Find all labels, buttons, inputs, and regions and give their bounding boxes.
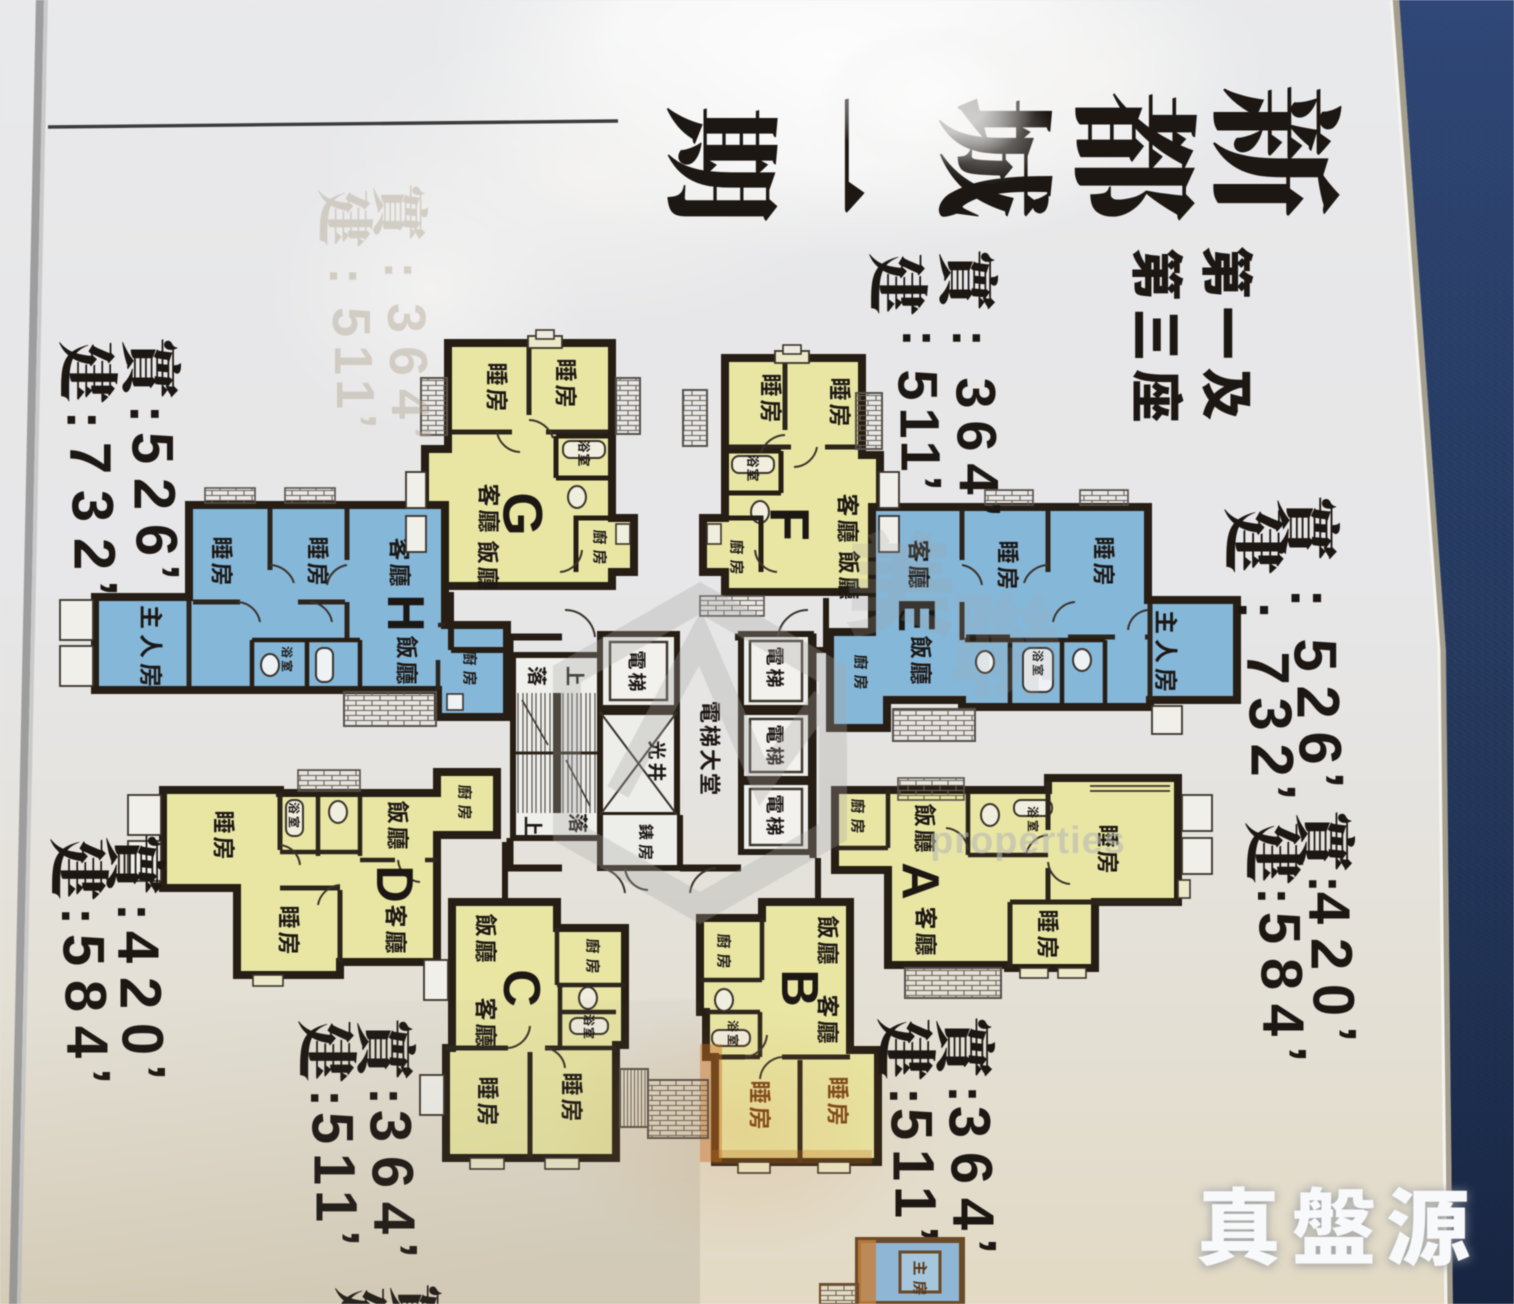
svg-text:H: H xyxy=(376,594,434,632)
svg-text::: : xyxy=(318,267,376,284)
svg-text:7: 7 xyxy=(1235,651,1302,684)
svg-text:properties: properties xyxy=(930,820,1126,862)
svg-text:’: ’ xyxy=(64,580,129,596)
svg-text:’: ’ xyxy=(1253,1046,1318,1062)
svg-text:3: 3 xyxy=(945,377,1008,408)
svg-text:A: A xyxy=(891,862,949,900)
svg-text:2: 2 xyxy=(1239,743,1306,776)
svg-text::: : xyxy=(56,411,119,430)
svg-text:5: 5 xyxy=(1247,912,1312,944)
svg-text:3: 3 xyxy=(1237,697,1304,730)
svg-text:’: ’ xyxy=(382,425,442,440)
svg-text:D: D xyxy=(365,865,423,903)
svg-text:2: 2 xyxy=(122,478,187,510)
svg-text:4: 4 xyxy=(380,389,440,419)
svg-text:1: 1 xyxy=(889,407,952,438)
svg-text:4: 4 xyxy=(948,463,1011,494)
svg-text::: : xyxy=(1246,887,1306,905)
svg-text:1: 1 xyxy=(325,379,385,409)
svg-text:4: 4 xyxy=(1251,1004,1316,1036)
svg-text::: : xyxy=(106,903,166,921)
svg-text:G: G xyxy=(492,492,555,536)
svg-text:5: 5 xyxy=(321,307,381,337)
svg-text::: : xyxy=(50,907,110,925)
svg-text:F: F xyxy=(759,507,822,541)
svg-text:’: ’ xyxy=(891,475,954,491)
svg-text:’: ’ xyxy=(1241,784,1308,801)
svg-text:5: 5 xyxy=(887,369,950,400)
svg-text:6: 6 xyxy=(946,420,1009,451)
svg-text:5: 5 xyxy=(120,432,185,464)
svg-text:3: 3 xyxy=(376,303,436,333)
svg-text::: : xyxy=(1226,600,1291,619)
svg-text:7: 7 xyxy=(58,442,123,474)
svg-text:6: 6 xyxy=(124,524,189,556)
svg-text:2: 2 xyxy=(62,538,127,570)
svg-text:1: 1 xyxy=(323,345,383,375)
svg-text:8: 8 xyxy=(1249,958,1314,990)
svg-text::: : xyxy=(373,261,431,278)
svg-text:3: 3 xyxy=(60,490,125,522)
svg-text::: : xyxy=(891,329,951,347)
svg-text:6: 6 xyxy=(378,346,438,376)
svg-text:3: 3 xyxy=(937,1106,1002,1138)
svg-text:’: ’ xyxy=(950,501,1013,517)
svg-text:1: 1 xyxy=(890,440,953,471)
svg-text:’: ’ xyxy=(327,413,387,428)
svg-text:6: 6 xyxy=(939,1152,1004,1184)
svg-text:’: ’ xyxy=(126,564,191,580)
svg-text::: : xyxy=(937,1085,997,1103)
svg-text:5: 5 xyxy=(51,934,116,966)
svg-text::: : xyxy=(119,405,182,424)
